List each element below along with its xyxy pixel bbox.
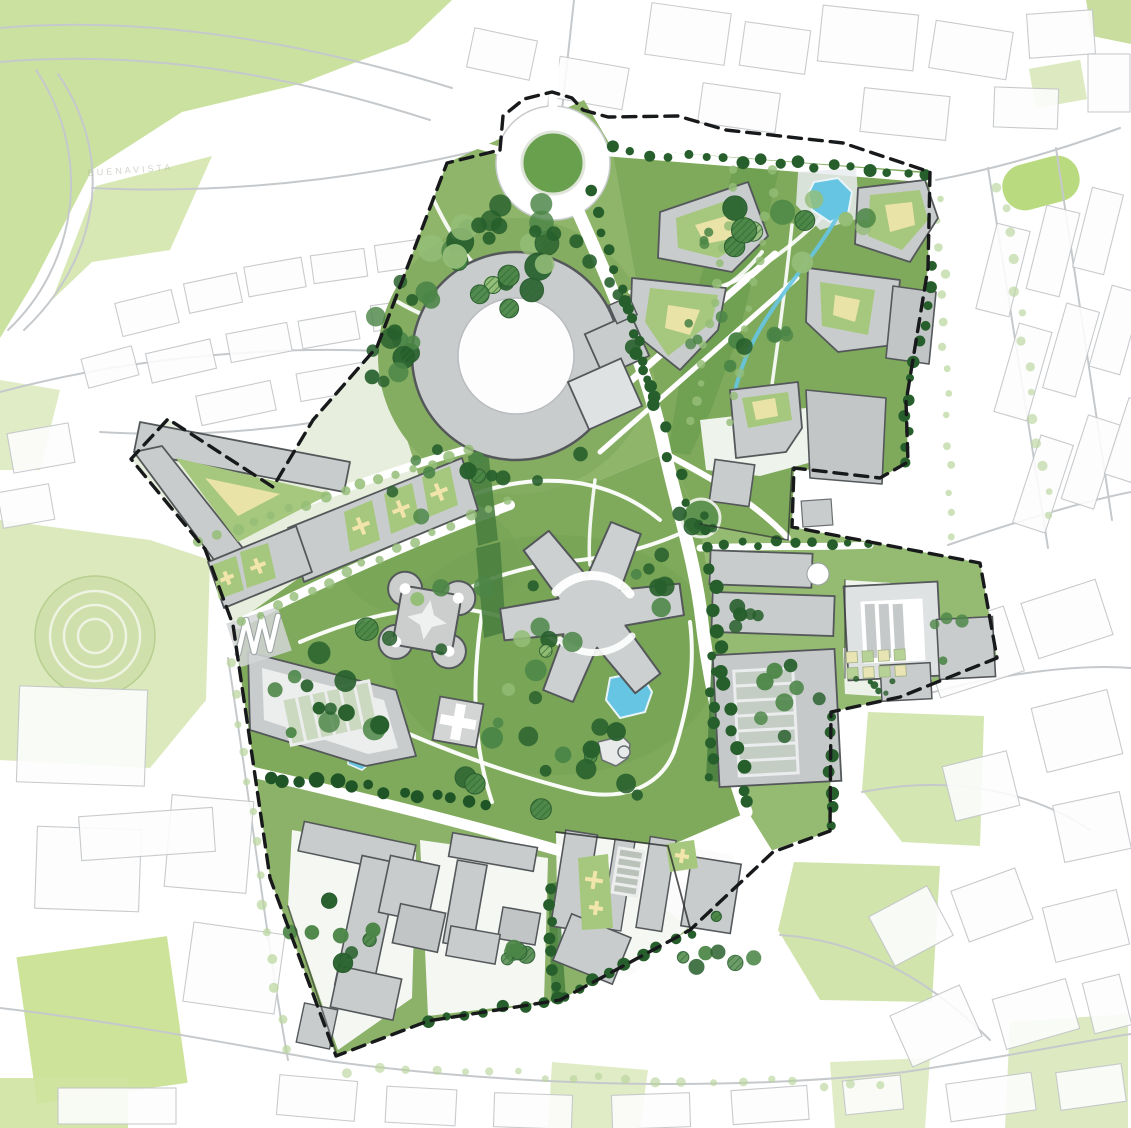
tree-icon	[286, 727, 297, 738]
tree-hatch-icon	[520, 278, 544, 302]
ctx-block	[993, 87, 1058, 129]
tree-icon	[463, 445, 473, 455]
tree-icon	[820, 1083, 829, 1092]
tree-icon	[767, 327, 783, 343]
tree-icon	[268, 682, 283, 697]
tree-icon	[250, 808, 257, 815]
tree-icon	[462, 1068, 469, 1075]
tree-icon	[839, 212, 854, 227]
tree-icon	[535, 254, 555, 274]
tree-icon	[532, 475, 543, 486]
tree-icon	[333, 928, 349, 944]
tree-icon	[443, 451, 455, 463]
tree-icon	[375, 556, 383, 564]
tree-icon	[324, 578, 334, 588]
tree-icon	[708, 717, 720, 729]
tree-icon	[736, 338, 753, 355]
tree-icon	[875, 688, 882, 695]
tree-icon	[363, 780, 373, 790]
tree-icon	[937, 196, 944, 203]
tree-icon	[934, 243, 943, 252]
tree-icon	[699, 239, 709, 249]
tree-icon	[941, 269, 950, 278]
tree-icon	[864, 164, 877, 177]
tree-icon	[711, 668, 719, 676]
ctx-block	[244, 257, 306, 297]
tree-icon	[485, 505, 493, 513]
tree-icon	[637, 949, 650, 962]
tree-icon	[741, 795, 753, 807]
tree-icon	[547, 917, 557, 927]
tree-icon	[883, 691, 888, 696]
tree-icon	[613, 289, 624, 300]
ctx-tree-row	[934, 196, 955, 541]
tree-icon	[607, 722, 626, 741]
ctx-block	[385, 1086, 457, 1126]
tree-icon	[282, 1045, 291, 1054]
tree-icon	[418, 235, 445, 262]
ctx-block	[976, 223, 1030, 317]
tree-icon	[1045, 512, 1052, 519]
tree-icon	[716, 677, 730, 691]
tree-icon	[643, 563, 654, 574]
tree-icon	[505, 940, 522, 957]
tree-icon	[945, 390, 952, 397]
ctx-block	[1088, 54, 1130, 112]
tree-icon	[697, 360, 706, 369]
tree-icon	[755, 153, 767, 165]
ctx-circular-park	[35, 576, 155, 696]
garden-bed	[895, 665, 907, 677]
tree-icon	[413, 509, 429, 525]
tree-icon	[370, 715, 389, 734]
tree-icon	[778, 730, 791, 743]
tree-icon	[525, 659, 547, 681]
tree-icon	[759, 239, 766, 246]
tree-icon	[503, 496, 511, 504]
tree-icon	[301, 679, 314, 692]
tree-icon	[684, 319, 693, 328]
tree-icon	[638, 365, 648, 375]
tree-icon	[308, 587, 317, 596]
masterplan-canvas: BUENAVISTA	[0, 0, 1131, 1128]
tree-icon	[707, 652, 716, 661]
tree-icon	[433, 790, 443, 800]
tree-icon	[776, 159, 786, 169]
tree-icon	[604, 244, 615, 255]
tree-hatch-icon	[711, 911, 721, 921]
tree-icon	[212, 530, 222, 540]
tree-icon	[827, 539, 838, 550]
tree-icon	[904, 169, 912, 177]
tree-icon	[411, 790, 424, 803]
tree-icon	[700, 511, 709, 520]
tree-icon	[729, 599, 745, 615]
tree-icon	[391, 471, 399, 479]
tree-icon	[871, 681, 879, 689]
tree-icon	[768, 1076, 775, 1083]
ctx-block	[739, 22, 810, 75]
tree-icon	[716, 259, 724, 267]
ctx-green-pill-topright	[997, 151, 1084, 216]
tree-icon	[410, 538, 420, 548]
tree-icon	[609, 265, 618, 274]
tree-icon	[625, 339, 641, 355]
tree-icon	[232, 690, 241, 699]
tree-icon	[739, 1078, 748, 1087]
tree-hatch-icon	[333, 953, 352, 972]
tree-icon	[768, 165, 778, 175]
tree-icon	[684, 150, 693, 159]
tree-icon	[921, 321, 931, 331]
building-east-bar-circle-cut	[807, 563, 829, 585]
tree-icon	[672, 507, 686, 521]
tree-icon	[279, 1015, 288, 1024]
tree-icon	[1006, 227, 1016, 237]
garden-bed	[863, 667, 875, 679]
tree-icon	[545, 945, 556, 956]
tree-icon	[756, 257, 765, 266]
tree-icon	[1031, 438, 1041, 448]
tree-icon	[643, 376, 651, 384]
tree-icon	[746, 950, 761, 965]
ctx-block	[276, 1075, 357, 1122]
ctx-block	[1042, 890, 1129, 963]
ctx-block	[183, 922, 285, 1014]
ctx-block	[611, 1093, 690, 1128]
tree-icon	[481, 800, 491, 810]
tree-icon	[955, 614, 968, 627]
tree-icon	[724, 703, 737, 716]
tree-icon	[846, 1080, 855, 1089]
tree-icon	[705, 319, 714, 328]
tree-icon	[948, 533, 955, 540]
tree-icon	[943, 442, 951, 450]
ctx-block	[310, 248, 367, 283]
tree-icon	[941, 612, 953, 624]
tree-icon	[632, 790, 643, 801]
tree-icon	[792, 155, 805, 168]
ctx-block	[16, 686, 147, 786]
roundabout-island	[522, 132, 584, 194]
tree-icon	[529, 225, 541, 237]
tree-icon	[496, 470, 511, 485]
tree-icon	[829, 159, 840, 170]
tree-icon	[813, 692, 826, 705]
tree-icon	[704, 228, 713, 237]
tree-icon	[411, 455, 422, 466]
masterplan-map: BUENAVISTA	[0, 0, 1131, 1128]
tree-icon	[792, 252, 814, 274]
tree-icon	[724, 360, 736, 372]
tree-icon	[227, 658, 236, 667]
tree-icon	[422, 291, 440, 309]
tree-icon	[544, 933, 556, 945]
tree-icon	[1027, 414, 1037, 424]
tree-icon	[759, 212, 769, 222]
tree-icon	[1016, 337, 1025, 346]
tree-icon	[703, 153, 711, 161]
courtyard-south-slabs	[578, 854, 613, 930]
tree-icon	[769, 188, 779, 198]
tree-icon	[698, 380, 705, 387]
tree-hatch-icon	[531, 799, 552, 820]
tree-icon	[288, 670, 301, 683]
tree-icon	[355, 479, 366, 490]
tree-icon	[705, 738, 716, 749]
tree-icon	[692, 396, 702, 406]
ctx-block	[1031, 690, 1123, 773]
tree-icon	[728, 183, 737, 192]
tree-icon	[233, 524, 244, 535]
tree-icon	[540, 765, 552, 777]
tree-hatch-icon	[723, 196, 747, 220]
tree-icon	[513, 630, 530, 647]
tree-icon	[530, 193, 552, 215]
ctx-block	[951, 868, 1033, 942]
tree-icon	[729, 620, 742, 633]
tree-icon	[685, 338, 696, 349]
tree-icon	[267, 954, 277, 964]
tree-icon	[345, 780, 357, 792]
tree-icon	[947, 461, 955, 469]
tree-icon	[237, 617, 246, 626]
tree-icon	[342, 567, 353, 578]
tree-icon	[807, 537, 817, 547]
tree-icon	[366, 307, 386, 327]
tree-icon	[626, 147, 634, 155]
tree-icon	[341, 486, 350, 495]
building-east-bar-1	[709, 550, 812, 588]
tree-icon	[991, 183, 1001, 193]
ctx-block	[1073, 187, 1124, 274]
tree-icon	[719, 153, 728, 162]
tree-hatch-icon	[732, 218, 757, 243]
tree-icon	[366, 923, 381, 938]
ctx-block	[731, 1085, 809, 1124]
tree-icon	[392, 543, 402, 553]
tree-icon	[789, 681, 804, 696]
tree-icon	[257, 900, 267, 910]
tree-icon	[308, 641, 331, 664]
tree-icon	[1028, 389, 1035, 396]
tree-icon	[338, 704, 355, 721]
tree-icon	[729, 166, 737, 174]
tree-icon	[378, 376, 390, 388]
building-ne-f	[709, 459, 754, 506]
ctx-block	[0, 484, 55, 528]
tree-hatch-icon	[465, 774, 485, 794]
tree-icon	[583, 741, 601, 759]
tree-icon	[432, 444, 443, 455]
tree-icon	[607, 140, 619, 152]
tree-icon	[856, 208, 876, 228]
tree-icon	[726, 725, 737, 736]
tree-icon	[745, 305, 752, 312]
tree-icon	[784, 659, 798, 673]
tree-icon	[770, 200, 795, 225]
tree-icon	[715, 640, 728, 653]
tree-icon	[357, 559, 365, 567]
ctx-block	[553, 56, 629, 110]
tree-icon	[555, 747, 572, 764]
tree-icon	[1009, 286, 1019, 296]
tree-icon	[1046, 488, 1053, 495]
tree-icon	[654, 548, 669, 563]
ctx-block	[115, 289, 180, 336]
tree-icon	[730, 392, 738, 400]
garden-bed	[879, 666, 891, 678]
tree-icon	[686, 417, 694, 425]
tree-icon	[387, 486, 399, 498]
tree-icon	[483, 232, 496, 245]
tree-icon	[788, 1077, 796, 1085]
ctx-block	[145, 339, 216, 383]
ctx-block	[817, 5, 918, 71]
tree-icon	[1003, 204, 1011, 212]
tree-icon	[709, 702, 720, 713]
tree-icon	[708, 753, 719, 764]
tree-icon	[545, 883, 556, 894]
tree-icon	[749, 278, 757, 286]
tree-icon	[853, 676, 859, 682]
tree-icon	[542, 1075, 549, 1082]
tree-icon	[638, 357, 648, 367]
tree-icon	[754, 542, 762, 550]
tree-icon	[435, 643, 447, 655]
tree-icon	[739, 538, 747, 546]
tree-icon	[631, 569, 642, 580]
tree-icon	[710, 624, 724, 638]
tree-icon	[466, 510, 477, 521]
tree-hatch-icon	[322, 893, 337, 908]
tree-icon	[470, 451, 484, 465]
building-south-t3	[498, 907, 541, 945]
tree-hatch-icon	[795, 211, 815, 231]
tree-icon	[257, 612, 265, 620]
tree-icon	[682, 499, 690, 507]
tree-icon	[285, 504, 293, 512]
tree-icon	[301, 501, 311, 511]
ctx-block	[1089, 285, 1131, 375]
tree-icon	[945, 490, 951, 496]
tree-icon	[938, 290, 947, 299]
tree-icon	[365, 370, 380, 385]
tree-hatch-icon	[500, 299, 519, 318]
tree-hatch-icon	[383, 631, 397, 645]
tree-icon	[676, 1077, 686, 1087]
tree-icon	[239, 748, 248, 757]
ctx-block	[183, 273, 242, 314]
tree-icon	[518, 727, 538, 747]
tree-icon	[243, 778, 250, 785]
ctx-block	[1013, 435, 1074, 533]
tree-icon	[273, 600, 283, 610]
tree-icon	[546, 964, 558, 976]
ctx-block	[1027, 10, 1096, 58]
tree-icon	[706, 604, 719, 617]
tree-icon	[739, 786, 750, 797]
tree-icon	[486, 470, 498, 482]
tree-icon	[388, 362, 408, 382]
tree-icon	[604, 277, 615, 288]
tree-icon	[712, 279, 722, 289]
tree-icon	[309, 772, 325, 788]
tree-icon	[711, 299, 719, 307]
building-ne-small-parcel	[801, 499, 833, 527]
tree-icon	[582, 254, 597, 269]
tree-icon	[253, 837, 262, 846]
tree-icon	[652, 598, 671, 617]
ctx-block	[929, 20, 1014, 80]
ctx-block	[1021, 579, 1113, 658]
tree-icon	[756, 673, 773, 690]
garden-bed	[846, 651, 858, 663]
tree-icon	[737, 156, 750, 169]
tree-hatch-icon	[470, 285, 489, 304]
tree-icon	[595, 1073, 602, 1080]
tree-icon	[387, 324, 403, 340]
tree-icon	[528, 580, 539, 591]
tree-icon	[485, 1067, 493, 1075]
tree-hatch-icon	[540, 645, 553, 658]
tree-icon	[621, 1075, 630, 1084]
tree-icon	[730, 741, 744, 755]
tree-icon	[1019, 309, 1026, 316]
tree-icon	[529, 691, 542, 704]
tree-icon	[705, 773, 713, 781]
tree-icon	[648, 391, 661, 404]
tree-icon	[409, 465, 416, 472]
tree-icon	[234, 721, 241, 728]
tree-icon	[428, 529, 435, 536]
tree-icon	[823, 766, 835, 778]
tree-icon	[250, 518, 258, 526]
ctx-block	[298, 311, 360, 349]
tree-icon	[726, 419, 733, 426]
garden-bed	[894, 649, 906, 661]
tree-icon	[543, 899, 555, 911]
road-roundabout-west	[380, 124, 497, 150]
tree-icon	[889, 678, 895, 684]
tree-icon	[570, 1075, 578, 1083]
tree-icon	[939, 656, 948, 665]
tree-icon	[655, 577, 675, 597]
tree-icon	[334, 670, 356, 692]
tree-icon	[809, 163, 818, 172]
chapel-apse	[618, 746, 630, 758]
tree-icon	[433, 1066, 442, 1075]
tree-icon	[664, 153, 673, 162]
tree-icon	[515, 1068, 522, 1075]
tree-icon	[331, 773, 346, 788]
tree-icon	[289, 592, 298, 601]
tree-icon	[493, 718, 504, 729]
building-south-r4	[392, 904, 445, 953]
ctx-block	[860, 88, 950, 141]
tree-icon	[944, 365, 951, 372]
ctx-block	[196, 380, 277, 425]
tree-icon	[846, 162, 854, 170]
tree-icon	[754, 711, 768, 725]
tree-icon	[443, 244, 468, 269]
tree-icon	[400, 788, 410, 798]
tree-icon	[401, 1066, 409, 1074]
tree-hatch-icon	[498, 265, 519, 286]
tree-icon	[943, 412, 950, 419]
tree-icon	[1026, 362, 1035, 371]
tree-icon	[790, 538, 800, 548]
